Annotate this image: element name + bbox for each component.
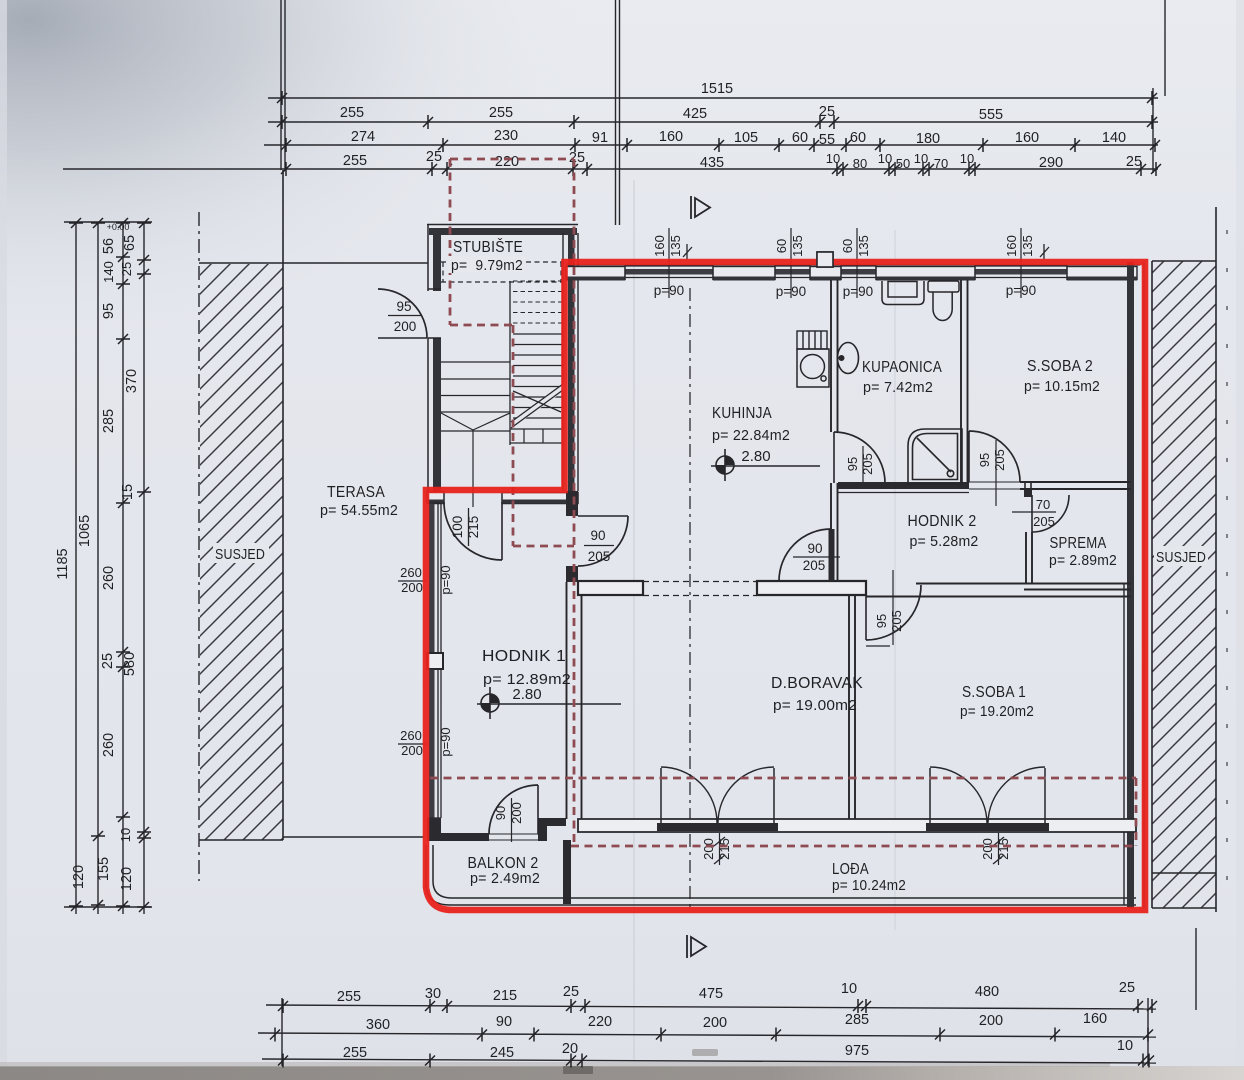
- svg-text:25: 25: [569, 150, 585, 166]
- svg-text:205: 205: [1033, 514, 1055, 529]
- svg-text:580: 580: [122, 652, 138, 676]
- svg-text:25: 25: [119, 262, 134, 276]
- svg-text:120: 120: [119, 867, 135, 891]
- svg-text:55: 55: [819, 132, 835, 148]
- svg-text:15: 15: [120, 484, 136, 500]
- svg-text:255: 255: [489, 105, 513, 121]
- svg-text:255: 255: [340, 105, 364, 121]
- svg-text:200: 200: [979, 1013, 1003, 1029]
- svg-text:10: 10: [841, 981, 857, 997]
- svg-text:p= 12.89m2: p= 12.89m2: [483, 671, 571, 688]
- svg-text:90: 90: [807, 541, 822, 556]
- svg-text:KUHINJA: KUHINJA: [712, 405, 772, 422]
- svg-text:10: 10: [826, 151, 840, 166]
- svg-text:p= 22.84m2: p= 22.84m2: [712, 427, 790, 444]
- svg-text:HODNIK 1: HODNIK 1: [482, 648, 566, 665]
- svg-text:255: 255: [343, 153, 367, 169]
- svg-text:p= 19.20m2: p= 19.20m2: [960, 703, 1034, 720]
- svg-text:160: 160: [1015, 130, 1039, 146]
- svg-text:p= 2.89m2: p= 2.89m2: [1049, 552, 1117, 569]
- svg-text:S.SOBA 1: S.SOBA 1: [962, 684, 1026, 701]
- svg-text:205: 205: [803, 558, 826, 573]
- svg-text:60: 60: [840, 239, 855, 253]
- svg-text:p= 7.42m2: p= 7.42m2: [863, 379, 933, 396]
- svg-text:285: 285: [101, 409, 117, 433]
- svg-text:260: 260: [400, 728, 422, 743]
- svg-text:475: 475: [699, 986, 723, 1002]
- svg-text:135: 135: [1020, 235, 1035, 257]
- svg-text:25: 25: [819, 104, 835, 120]
- svg-text:p=90: p=90: [438, 727, 453, 756]
- svg-text:KUPAONICA: KUPAONICA: [862, 359, 942, 376]
- svg-text:555: 555: [979, 107, 1003, 123]
- svg-text:135: 135: [790, 235, 805, 257]
- svg-text:274: 274: [351, 129, 375, 145]
- svg-text:STUBIŠTE: STUBIŠTE: [453, 237, 523, 256]
- svg-text:D.BORAVAK: D.BORAVAK: [771, 675, 863, 692]
- svg-text:30: 30: [425, 986, 441, 1002]
- svg-text:p= 2.49m2: p= 2.49m2: [470, 870, 540, 887]
- svg-text:135: 135: [668, 235, 683, 257]
- svg-text:p= 19.00m2: p= 19.00m2: [773, 697, 857, 714]
- svg-text:135: 135: [856, 235, 871, 257]
- svg-text:95: 95: [977, 453, 992, 467]
- svg-text:10: 10: [1117, 1038, 1133, 1054]
- svg-text:160: 160: [1083, 1011, 1107, 1027]
- svg-text:290: 290: [1039, 155, 1063, 171]
- svg-text:90: 90: [496, 1014, 512, 1030]
- svg-text:255: 255: [337, 989, 361, 1005]
- svg-text:90: 90: [590, 528, 605, 543]
- svg-text:60: 60: [792, 130, 808, 146]
- svg-text:205: 205: [588, 549, 611, 564]
- svg-text:p= 54.55m2: p= 54.55m2: [320, 502, 398, 519]
- svg-text:220: 220: [588, 1014, 612, 1030]
- svg-text:105: 105: [734, 130, 758, 146]
- svg-text:2.80: 2.80: [512, 686, 541, 703]
- svg-text:20: 20: [562, 1041, 578, 1057]
- svg-text:140: 140: [1102, 130, 1126, 146]
- svg-text:425: 425: [683, 106, 707, 122]
- svg-text:160: 160: [659, 129, 683, 145]
- svg-text:435: 435: [700, 155, 724, 171]
- svg-text:p=90: p=90: [1006, 283, 1036, 298]
- svg-text:LOĐA: LOĐA: [832, 861, 869, 878]
- svg-text:200: 200: [980, 838, 995, 860]
- svg-text:p=90: p=90: [776, 284, 806, 299]
- svg-text:95: 95: [845, 457, 860, 471]
- svg-text:205: 205: [860, 453, 875, 475]
- svg-text:60: 60: [850, 130, 866, 146]
- svg-text:SUSJED: SUSJED: [215, 546, 265, 563]
- svg-text:200: 200: [401, 580, 423, 595]
- svg-text:10: 10: [960, 151, 974, 166]
- svg-text:245: 245: [490, 1045, 514, 1061]
- svg-text:260: 260: [101, 733, 117, 757]
- svg-text:160: 160: [1004, 235, 1019, 257]
- svg-text:S.SOBA 2: S.SOBA 2: [1027, 358, 1093, 375]
- svg-text:200: 200: [703, 1015, 727, 1031]
- svg-text:25: 25: [1119, 980, 1135, 996]
- svg-text:80: 80: [853, 156, 867, 171]
- svg-text:215: 215: [493, 988, 517, 1004]
- svg-text:975: 975: [845, 1043, 869, 1059]
- svg-text:10: 10: [878, 151, 892, 166]
- svg-text:200: 200: [401, 743, 423, 758]
- svg-text:56: 56: [101, 238, 117, 254]
- svg-text:480: 480: [975, 984, 999, 1000]
- svg-text:205: 205: [889, 610, 904, 632]
- svg-text:180: 180: [916, 131, 940, 147]
- svg-text:TERASA: TERASA: [327, 484, 385, 501]
- svg-text:160: 160: [652, 235, 667, 257]
- svg-text:95: 95: [396, 299, 411, 314]
- svg-text:95: 95: [101, 303, 117, 319]
- svg-text:p=90: p=90: [654, 283, 684, 298]
- svg-text:p=90: p=90: [843, 284, 873, 299]
- svg-text:1065: 1065: [77, 515, 93, 547]
- svg-text:1515: 1515: [701, 81, 733, 97]
- svg-text:SPREMA: SPREMA: [1050, 535, 1107, 552]
- svg-text:HODNIK 2: HODNIK 2: [908, 513, 977, 530]
- svg-text:1185: 1185: [55, 548, 71, 579]
- svg-text:10: 10: [118, 828, 133, 842]
- svg-text:285: 285: [845, 1012, 869, 1028]
- svg-text:25: 25: [563, 984, 579, 1000]
- svg-text:200: 200: [394, 319, 417, 334]
- svg-text:50: 50: [896, 156, 910, 171]
- svg-text:140: 140: [101, 261, 116, 283]
- svg-text:230: 230: [494, 128, 518, 144]
- svg-text:360: 360: [366, 1017, 390, 1033]
- svg-text:p= 5.28m2: p= 5.28m2: [910, 533, 979, 550]
- svg-text:200: 200: [701, 838, 716, 860]
- svg-text:25: 25: [426, 149, 442, 165]
- svg-text:10: 10: [914, 151, 928, 166]
- svg-text:2.80: 2.80: [741, 448, 770, 465]
- svg-text:p= 10.24m2: p= 10.24m2: [832, 877, 906, 894]
- svg-text:220: 220: [495, 154, 519, 170]
- svg-text:p=90: p=90: [438, 565, 453, 594]
- svg-text:25: 25: [100, 653, 116, 669]
- svg-text:120: 120: [71, 865, 87, 889]
- svg-text:95: 95: [874, 614, 889, 628]
- svg-text:370: 370: [124, 369, 140, 393]
- svg-text:60: 60: [774, 239, 789, 253]
- svg-text:SUSJED: SUSJED: [1156, 549, 1206, 566]
- svg-text:155: 155: [96, 857, 112, 881]
- svg-text:205: 205: [992, 449, 1007, 471]
- svg-text:255: 255: [343, 1045, 367, 1061]
- svg-text:25: 25: [1126, 154, 1142, 170]
- svg-text:70: 70: [1036, 497, 1050, 512]
- svg-text:70: 70: [934, 156, 948, 171]
- svg-text:260: 260: [101, 566, 117, 590]
- svg-text:90: 90: [493, 806, 508, 820]
- svg-text:260: 260: [400, 565, 422, 580]
- svg-text:p= 9.79m2: p= 9.79m2: [451, 257, 523, 274]
- svg-text:91: 91: [592, 130, 608, 146]
- svg-text:p= 10.15m2: p= 10.15m2: [1024, 378, 1100, 395]
- svg-text:65: 65: [122, 235, 138, 251]
- svg-text:100: 100: [450, 516, 465, 539]
